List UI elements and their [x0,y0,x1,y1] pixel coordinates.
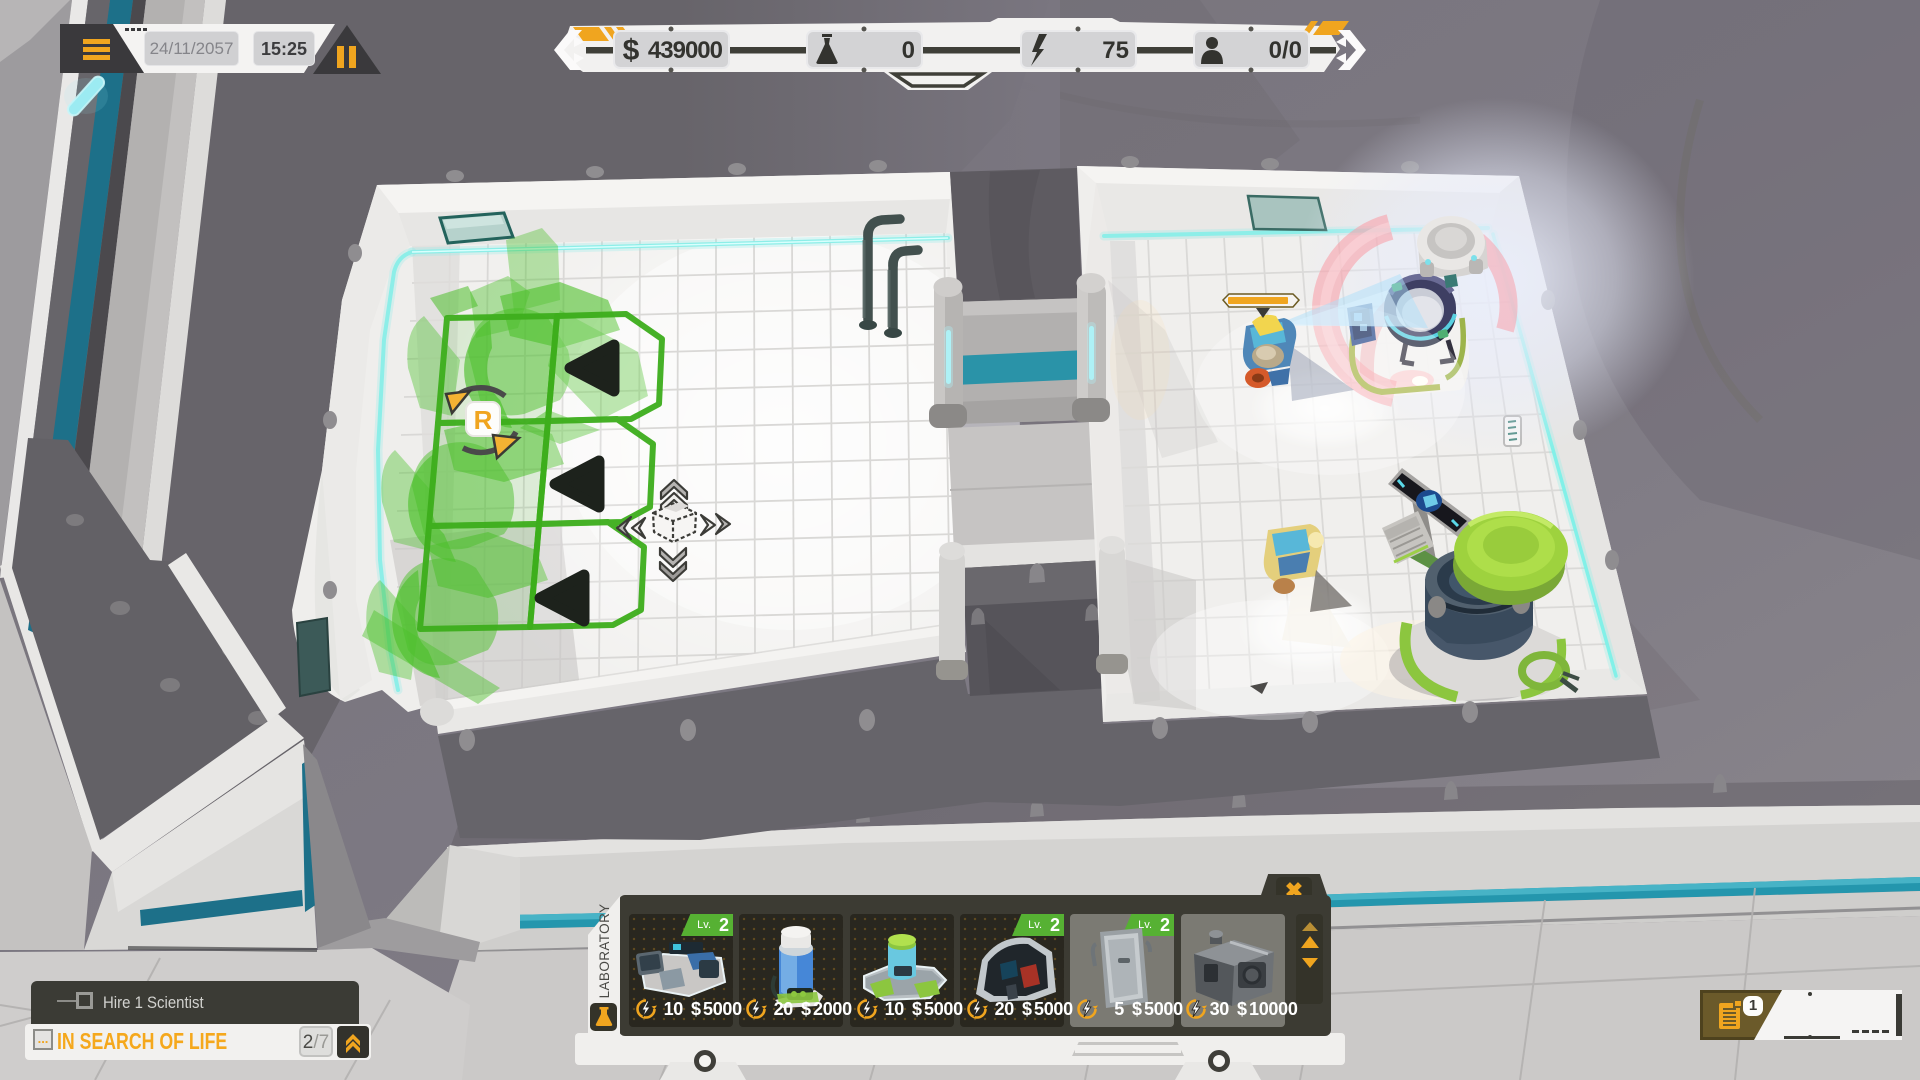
svg-text:0/0: 0/0 [1269,37,1302,64]
svg-text:439000: 439000 [648,37,723,64]
svg-text:LABORATORY: LABORATORY [597,904,612,999]
svg-text:0: 0 [902,37,915,64]
svg-text:R: R [474,405,493,435]
svg-text:75: 75 [1102,37,1129,64]
svg-text:$: $ [623,34,640,67]
